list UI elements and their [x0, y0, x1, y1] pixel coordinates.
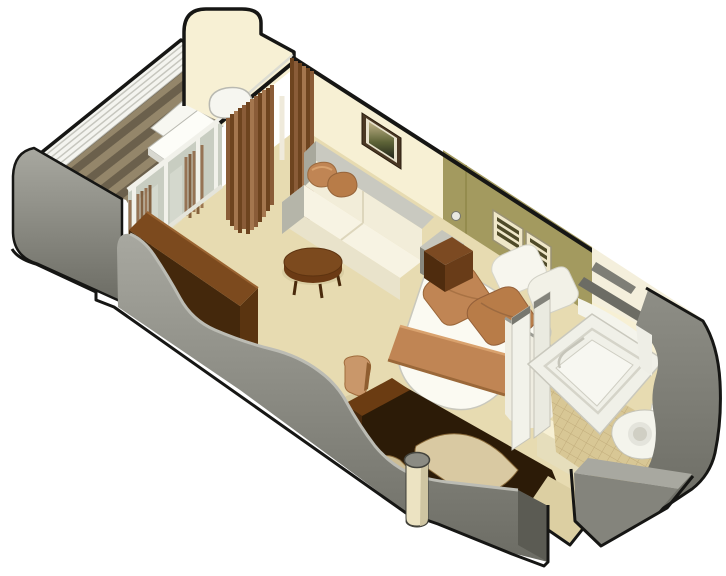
table-top	[284, 248, 342, 276]
stateroom-isometric-rendering	[0, 0, 726, 576]
column-shade	[420, 462, 428, 526]
reading-light	[452, 212, 461, 221]
support-column	[405, 453, 430, 528]
tub-panel	[512, 306, 530, 450]
floorplan-canvas	[0, 0, 726, 576]
toilet-bowl-inner	[633, 427, 647, 441]
column-cap	[405, 453, 430, 468]
sofa-pillow	[328, 172, 357, 197]
